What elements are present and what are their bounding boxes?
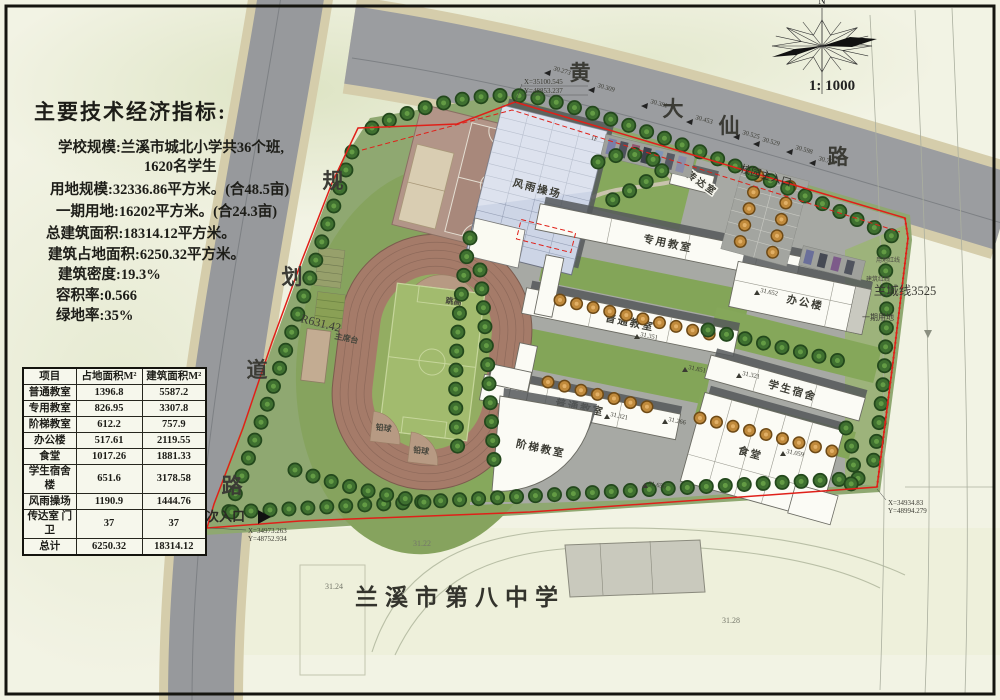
indicator-line: 用地规模:32336.86平方米。(合48.5亩) xyxy=(34,181,384,200)
table-row: 普通教室1396.85587.2 xyxy=(23,385,206,401)
ground-elevation-label: 31.28 xyxy=(722,616,740,625)
table-cell: 传达室 门卫 xyxy=(23,510,76,539)
col-header-item: 项目 xyxy=(23,368,76,385)
land-redline-label: 用地红线 xyxy=(876,256,900,264)
table-cell: 专用教室 xyxy=(23,401,76,417)
road-name-huangdaxian: 黄 xyxy=(570,61,591,85)
table-cell: 18314.12 xyxy=(142,539,206,556)
indicator-line: 一期用地:16202平方米。(合24.3亩) xyxy=(34,203,384,222)
road-name-guihua: 道 xyxy=(247,358,268,382)
lancheng-line-label: 兰城线3525 xyxy=(874,284,937,298)
table-cell: 食堂 xyxy=(23,449,76,465)
table-cell: 普通教室 xyxy=(23,385,76,401)
indicators-title: 主要技术经济指标: xyxy=(34,96,384,126)
table-cell: 1017.26 xyxy=(76,449,142,465)
scale-label: 1: 1000 xyxy=(809,78,855,94)
technical-indicators: 主要技术经济指标: 学校规模:兰溪市城北小学共36个班, 1620名学生 用地规… xyxy=(34,96,384,326)
table-cell: 826.95 xyxy=(76,401,142,417)
indicator-line: 容积率:0.566 xyxy=(34,287,384,306)
table-row: 总计6250.3218314.12 xyxy=(23,539,206,556)
table-cell: 办公楼 xyxy=(23,433,76,449)
table-row: 专用教室826.953307.8 xyxy=(23,401,206,417)
ground-elevation-label: 31.24 xyxy=(325,582,343,591)
table-cell: 总计 xyxy=(23,539,76,556)
table-cell: 37 xyxy=(76,510,142,539)
road-name-guihua: 路 xyxy=(222,474,244,498)
coordinate-label: X=35100.545 xyxy=(524,78,563,86)
indicator-line: 学校规模:兰溪市城北小学共36个班, xyxy=(34,139,384,158)
table-cell: 3178.58 xyxy=(142,465,206,494)
road-name-huangdaxian: 仙 xyxy=(719,114,740,138)
indicator-line: 绿地率:35% xyxy=(34,307,384,326)
indicator-line: 总建筑面积:18314.12平方米。 xyxy=(34,225,384,244)
table-row: 阶梯教室612.2757.9 xyxy=(23,417,206,433)
neighbour-school-label: 兰溪市第八中学 xyxy=(355,584,565,610)
table-cell: 1396.8 xyxy=(76,385,142,401)
coordinate-label: Y=48994.279 xyxy=(888,507,927,515)
area-summary-table: 项目 占地面积M² 建筑面积M² 普通教室1396.85587.2专用教室826… xyxy=(22,367,207,556)
table-cell: 37 xyxy=(142,510,206,539)
indicator-line: 建筑占地面积:6250.32平方米。 xyxy=(34,246,384,265)
drawing-sheet: 跳高 铅球 铅球 主席台 风雨操场 1F xyxy=(0,0,1000,700)
ground-elevation-label: 31.22 xyxy=(413,539,431,548)
table-cell: 阶梯教室 xyxy=(23,417,76,433)
coordinate-label: Y=48752.934 xyxy=(248,535,287,543)
table-cell: 517.61 xyxy=(76,433,142,449)
coordinate-label: Y=48853.237 xyxy=(524,87,563,95)
table-row: 办公楼517.612119.55 xyxy=(23,433,206,449)
table-row: 学生宿舍楼651.63178.58 xyxy=(23,465,206,494)
table-row: 传达室 门卫3737 xyxy=(23,510,206,539)
table-cell: 1881.33 xyxy=(142,449,206,465)
indicator-line: 1620名学生 xyxy=(34,158,384,177)
col-header-floor-area: 建筑面积M² xyxy=(142,368,206,385)
indicator-line: 建筑密度:19.3% xyxy=(34,266,384,285)
table-cell: 651.6 xyxy=(76,465,142,494)
table-cell: 1444.76 xyxy=(142,494,206,510)
table-cell: 2119.55 xyxy=(142,433,206,449)
building-redline-label: 建筑红线 xyxy=(866,275,890,283)
table-cell: 5587.2 xyxy=(142,385,206,401)
table-row: 食堂1017.261881.33 xyxy=(23,449,206,465)
table-cell: 学生宿舍楼 xyxy=(23,465,76,494)
coordinate-label: X=34973.263 xyxy=(248,527,287,535)
table-cell: 3307.8 xyxy=(142,401,206,417)
table-cell: 6250.32 xyxy=(76,539,142,556)
table-cell: 757.9 xyxy=(142,417,206,433)
table-cell: 612.2 xyxy=(76,417,142,433)
phase1-land-label: 一期用地 xyxy=(862,312,894,322)
coordinate-label: X=34934.83 xyxy=(888,499,924,507)
table-cell: 风雨操场 xyxy=(23,494,76,510)
table-header-row: 项目 占地面积M² 建筑面积M² xyxy=(23,368,206,385)
col-header-footprint: 占地面积M² xyxy=(76,368,142,385)
secondary-entrance-label: 次入口 xyxy=(206,509,245,524)
table-cell: 1190.9 xyxy=(76,494,142,510)
table-row: 风雨操场1190.91444.76 xyxy=(23,494,206,510)
